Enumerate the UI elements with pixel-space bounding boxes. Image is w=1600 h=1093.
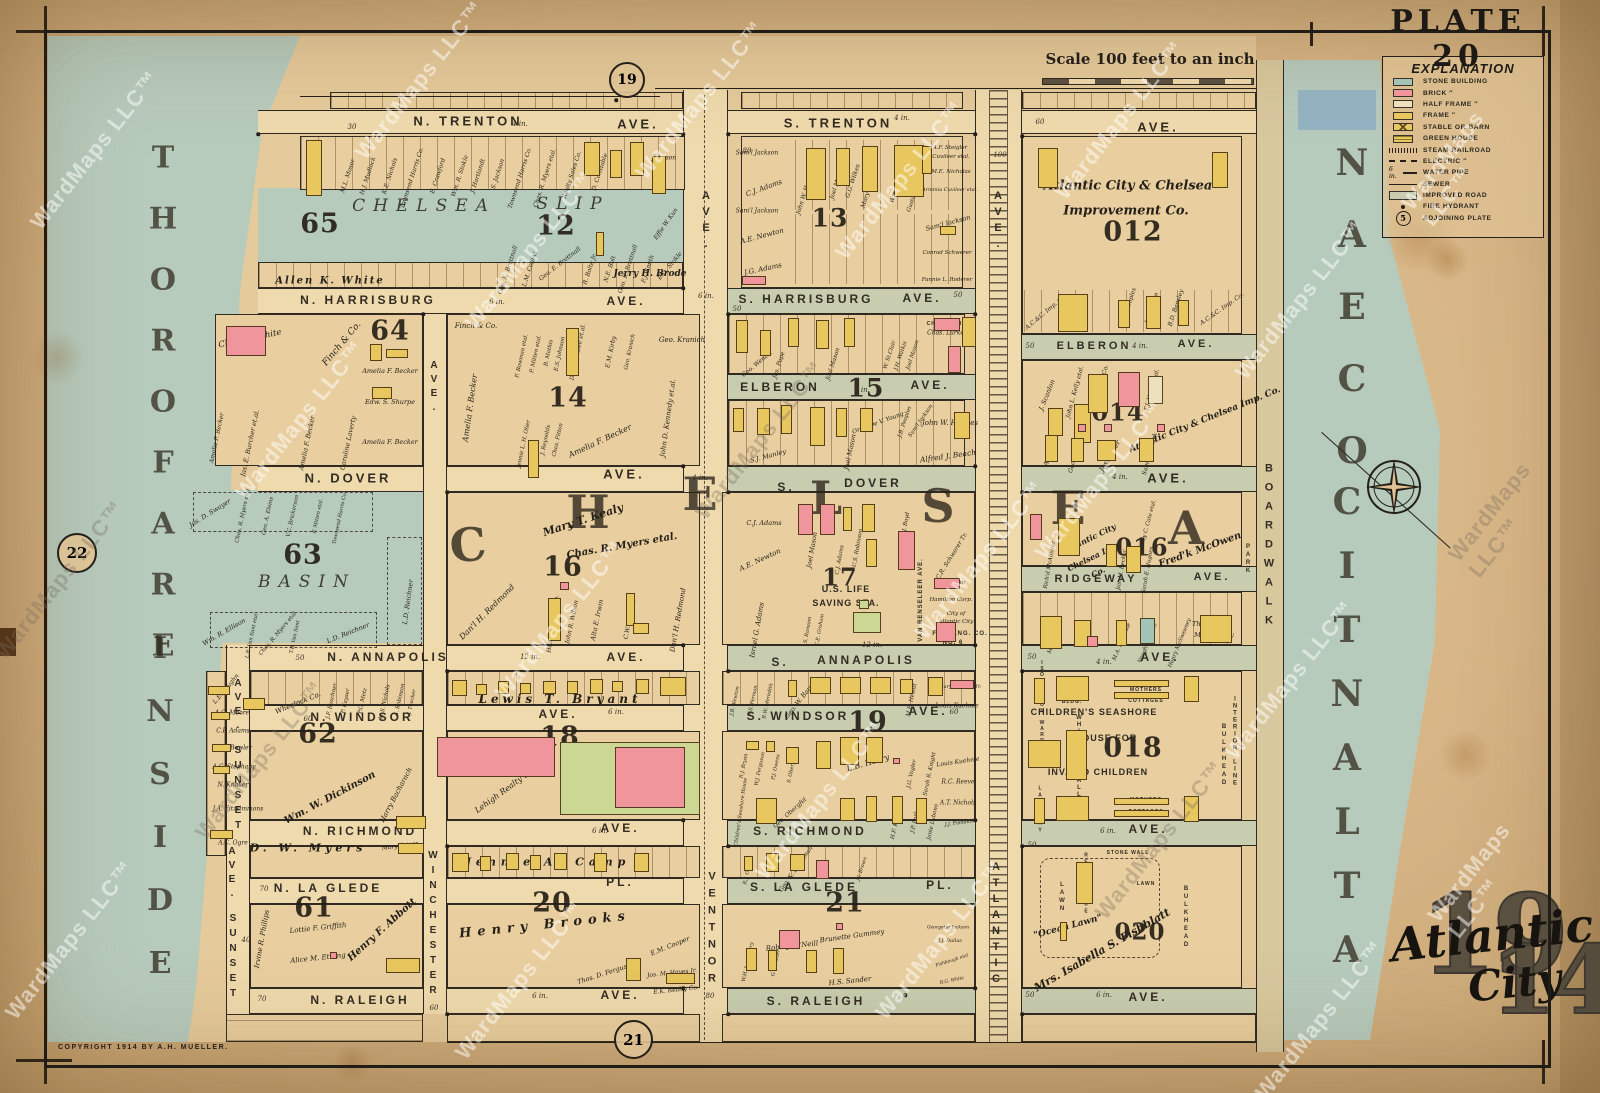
dimension-label: 50 xyxy=(1028,653,1037,661)
plate-title: PLATE 20 xyxy=(1368,4,1548,74)
building xyxy=(788,318,799,347)
vertical-label: INTERIOR LINE xyxy=(1232,697,1238,788)
frame-tick xyxy=(1310,22,1313,46)
vertical-label: BULKHEAD xyxy=(1183,886,1189,950)
owner-label: Georgette Jackson xyxy=(927,926,969,931)
survey-dot xyxy=(726,490,730,494)
legend-swatch xyxy=(1393,89,1413,97)
city-block xyxy=(741,92,963,109)
tiny-label: LAWN xyxy=(1137,881,1156,887)
vertical-label: CITNALTA xyxy=(1326,481,1368,993)
legend-stable-icon xyxy=(1389,123,1417,131)
building xyxy=(1038,148,1058,188)
building xyxy=(757,408,770,435)
watermark: WardMaps LLC™ xyxy=(1443,457,1557,582)
building xyxy=(1178,300,1189,326)
dimension-label: 4 in. xyxy=(692,474,708,482)
building xyxy=(610,150,622,178)
legend-swatch: 5 xyxy=(1396,211,1411,226)
copyright-text: COPYRIGHT 1914 BY A.H. MUELLER. xyxy=(58,1044,229,1051)
script-label: Lewis T. Bryant xyxy=(478,692,641,706)
tiny-label: STONE WALL xyxy=(1107,850,1150,856)
building xyxy=(1071,438,1084,462)
survey-dot xyxy=(445,1012,449,1016)
vertical-label: THOROFARE xyxy=(146,141,181,690)
survey-dot xyxy=(421,312,425,316)
owner-label: Hamilton Corp. xyxy=(929,597,972,603)
legend-item: HALF FRAME ″ xyxy=(1389,99,1537,110)
survey-dot xyxy=(681,986,685,990)
building xyxy=(900,679,913,694)
street-label: AVE. xyxy=(600,988,639,1002)
building xyxy=(934,318,960,331)
building xyxy=(816,320,829,349)
survey-dot xyxy=(681,464,685,468)
building xyxy=(1078,424,1086,432)
legend-swatch xyxy=(1393,78,1413,86)
survey-dot xyxy=(445,490,449,494)
script-label: Atlantic City & Chelsea xyxy=(1044,179,1213,194)
building xyxy=(634,853,649,872)
owner-label: Sam'l Jackson xyxy=(736,150,778,157)
building xyxy=(1058,518,1080,556)
building xyxy=(1212,152,1228,188)
building xyxy=(744,856,753,871)
building xyxy=(870,677,891,694)
street-label: N. RALEIGH xyxy=(310,993,409,1007)
survey-dot xyxy=(973,132,977,136)
vertical-label: AVE. xyxy=(700,190,712,254)
dimension-label: 80 xyxy=(706,992,715,1000)
margin-tab xyxy=(0,628,16,656)
building xyxy=(733,408,744,432)
building xyxy=(626,593,635,626)
building xyxy=(306,140,322,196)
block-number: 65 xyxy=(300,209,340,240)
building xyxy=(916,798,927,824)
dimension-label: 50 xyxy=(296,654,305,662)
survey-dot xyxy=(726,312,730,316)
vertical-label: ATLANTIC xyxy=(990,861,1002,989)
street-label: N. DOVER xyxy=(305,471,392,486)
legend-item-label: BRICK ″ xyxy=(1423,90,1453,97)
survey-dot xyxy=(726,132,730,136)
building xyxy=(786,747,799,764)
adjoining-plate-left: 22 xyxy=(57,533,97,573)
building xyxy=(530,855,541,870)
legend-rail-icon xyxy=(1389,148,1417,153)
dimension-label: 50 xyxy=(1026,342,1035,350)
building xyxy=(548,598,561,641)
block-number: 20 xyxy=(532,888,572,919)
dimension-label: 6 in. xyxy=(698,292,714,300)
block-number: 21 xyxy=(825,888,865,919)
building xyxy=(652,156,666,194)
building xyxy=(746,741,759,750)
block-number: 64 xyxy=(370,316,410,347)
legend-electric-icon xyxy=(1389,160,1417,162)
legend-item-label: WATER PIPE xyxy=(1423,169,1469,176)
street-label: S. HARRISBURG xyxy=(738,292,873,306)
street-label: AVE. xyxy=(1128,990,1167,1004)
legend-item: IMPROVED ROAD xyxy=(1389,190,1537,201)
building xyxy=(936,622,956,642)
building xyxy=(1048,408,1063,436)
dimension-label: 30 xyxy=(348,123,357,131)
building xyxy=(498,681,509,694)
script-label: Allen K. White xyxy=(275,276,384,287)
frame-tick xyxy=(16,30,72,33)
building xyxy=(1056,676,1089,701)
building xyxy=(528,440,539,478)
vertical-label: BULKHEAD xyxy=(1221,724,1227,788)
building xyxy=(1060,922,1067,941)
city-block xyxy=(447,1014,700,1042)
building xyxy=(212,744,231,752)
city-block xyxy=(722,1014,975,1042)
legend-item-label: STONE BUILDING xyxy=(1423,78,1488,85)
vertical-label: AVE. xyxy=(992,190,1004,254)
vertical-label: SUNSET xyxy=(233,745,244,835)
legend-swatch xyxy=(1393,112,1413,120)
street-label: ELBERON xyxy=(1057,340,1132,352)
water-label: CHELSEA xyxy=(352,196,496,216)
vertical-label: VENTNOR xyxy=(706,871,718,990)
building xyxy=(386,349,408,358)
building xyxy=(816,860,829,879)
building xyxy=(892,796,903,824)
building xyxy=(1184,796,1199,822)
street-label: AVE. xyxy=(1128,822,1167,836)
building xyxy=(1040,616,1062,649)
building xyxy=(396,816,426,829)
street-label: AVE. xyxy=(1194,571,1231,583)
owner-label: Finch & Co. xyxy=(455,322,497,330)
vertical-label: PARK xyxy=(1245,544,1251,576)
map-edge-line xyxy=(655,88,1256,89)
building xyxy=(810,407,825,446)
building xyxy=(666,973,695,984)
dimension-label: 40 xyxy=(242,936,251,944)
building xyxy=(1114,692,1169,699)
adjoining-plate-bottom-number: 21 xyxy=(623,1031,644,1049)
street-label: S. TRENTON xyxy=(784,116,893,131)
building xyxy=(452,680,467,696)
building xyxy=(1076,862,1093,904)
building xyxy=(213,766,230,774)
dimension-label: 60 xyxy=(430,1004,439,1012)
owner-label: Edw. S. Shurpe xyxy=(365,398,415,406)
building xyxy=(1088,374,1108,413)
adjoining-plate-bottom: 21 xyxy=(614,1020,653,1059)
building xyxy=(766,853,779,872)
legend-hydrant-icon xyxy=(1389,205,1417,209)
building xyxy=(768,950,777,971)
legend-greenhouse-icon xyxy=(1389,135,1417,143)
street-label: AVE. xyxy=(1137,120,1178,135)
tiny-label: CHILDREN'S SEASHORE xyxy=(1031,707,1158,717)
building xyxy=(330,952,337,959)
dimension-label: 6 in. xyxy=(489,298,505,306)
building xyxy=(1034,798,1045,824)
building xyxy=(742,276,766,285)
building xyxy=(1148,376,1163,404)
legend-item-label: STEAM RAILROAD xyxy=(1423,147,1491,154)
building xyxy=(1045,435,1058,462)
building xyxy=(1104,424,1112,432)
dimension-label: 12 in. xyxy=(520,653,540,661)
building xyxy=(520,683,531,694)
tiny-label: SAVING STA. xyxy=(812,598,879,608)
legend-item: GREEN HOUSE xyxy=(1389,133,1537,144)
owner-label: Cuvileer etal. xyxy=(932,154,970,160)
building xyxy=(372,387,392,399)
building xyxy=(898,531,915,570)
building xyxy=(480,856,491,871)
legend-item-label: FIRE HYDRANT xyxy=(1423,203,1479,210)
building xyxy=(660,677,686,696)
dimension-label: 6 in. xyxy=(1100,827,1116,835)
building xyxy=(1114,810,1169,817)
dimension-label: 4 in. xyxy=(894,114,910,122)
block-number: 19 xyxy=(848,707,888,738)
city-block xyxy=(226,1014,423,1042)
street-label: AVE. xyxy=(1178,338,1215,350)
street-label: AVE. xyxy=(902,291,941,305)
building xyxy=(208,686,230,695)
building xyxy=(1030,514,1042,540)
building xyxy=(862,504,875,532)
building xyxy=(836,148,850,186)
dimension-label: 6 in. xyxy=(532,992,548,1000)
building xyxy=(1184,676,1199,702)
street-label: PL. xyxy=(926,878,954,892)
water-label: BASIN xyxy=(258,572,356,592)
paper-stain xyxy=(330,1045,375,1080)
building xyxy=(1097,440,1116,461)
building xyxy=(1058,294,1088,332)
legend-item: 5ADJOINING PLATE xyxy=(1389,213,1537,224)
legend-swatch xyxy=(1393,135,1413,143)
building xyxy=(893,758,900,764)
dimension-label: 60 xyxy=(1036,118,1045,126)
building xyxy=(1140,618,1155,644)
building xyxy=(1028,740,1061,768)
street-label: DOVER xyxy=(844,476,902,490)
owner-label: Amelia F. Becker xyxy=(362,367,418,375)
vertical-label: SUNSET xyxy=(228,913,239,1003)
building xyxy=(859,600,869,609)
scale-bar xyxy=(1042,78,1254,85)
building xyxy=(833,948,844,974)
building xyxy=(806,148,826,200)
dimension-label: 12 in. xyxy=(862,641,882,649)
owner-label: M.E. Nicholas xyxy=(931,169,970,175)
legend-frame-icon xyxy=(1389,112,1417,120)
dimension-label: 4 in. xyxy=(1112,473,1128,481)
survey-dot xyxy=(1020,490,1024,494)
building xyxy=(836,408,847,437)
building xyxy=(584,142,600,176)
legend-item: FRAME ″ xyxy=(1389,110,1537,121)
legend-item-label: STABLE OR BARN xyxy=(1423,124,1490,131)
legend-item: STEAM RAILROAD xyxy=(1389,144,1537,155)
street-label: S. xyxy=(771,655,788,669)
building xyxy=(853,612,881,633)
survey-dot xyxy=(1020,134,1024,138)
dimension-label: 4 in. xyxy=(854,386,870,394)
building xyxy=(766,741,775,752)
legend-swatch xyxy=(1393,100,1413,108)
building xyxy=(806,950,817,973)
street-label: N. ANNAPOLIS xyxy=(327,650,449,664)
block-number: 14 xyxy=(548,383,588,414)
street-label: S. RALEIGH xyxy=(767,994,866,1008)
street-label: AVE. xyxy=(617,117,658,132)
building xyxy=(210,830,233,839)
building xyxy=(790,854,805,871)
dimension-label: 6 in. xyxy=(1096,991,1112,999)
building xyxy=(843,507,852,531)
street-label: N. HARRISBURG xyxy=(300,293,436,307)
logo-script-2: City xyxy=(1466,953,1564,1011)
building xyxy=(836,923,843,930)
street-label: PL. xyxy=(606,875,634,889)
building xyxy=(862,146,878,192)
building xyxy=(590,679,603,694)
building xyxy=(1087,636,1098,647)
frame-tick xyxy=(44,1040,47,1084)
vertical-label: LAWN xyxy=(1059,882,1065,914)
owner-label: J.J. Dallas xyxy=(938,938,962,944)
building xyxy=(1116,620,1127,646)
building xyxy=(866,796,877,822)
building xyxy=(746,948,757,971)
legend-swatch xyxy=(1389,184,1417,185)
adjoining-plate-left-number: 22 xyxy=(67,544,88,562)
building xyxy=(810,677,831,694)
legend-sewer-icon xyxy=(1389,184,1417,185)
legend-swatch xyxy=(1401,205,1405,209)
building xyxy=(594,853,607,872)
legend-item-label: FRAME ″ xyxy=(1423,112,1456,119)
street-band xyxy=(258,110,1256,134)
owner-label: Conrad Schwerer xyxy=(922,250,971,256)
building xyxy=(1118,372,1140,407)
scale-label: Scale 100 feet to an inch xyxy=(1040,50,1260,68)
survey-dot xyxy=(903,993,907,997)
street-label: N. TRENTON xyxy=(413,114,522,129)
survey-dot xyxy=(973,986,977,990)
building xyxy=(962,317,976,347)
legend-waterpipe-icon: 6 in. xyxy=(1389,166,1417,180)
block-number: 62 xyxy=(298,719,338,750)
dimension-label: 50 xyxy=(1026,991,1035,999)
building xyxy=(781,405,792,434)
compass-rose-icon xyxy=(1362,455,1426,519)
dimension-label: 50 xyxy=(733,305,742,313)
legend-swatch xyxy=(1389,148,1417,153)
survey-dot xyxy=(973,312,977,316)
vertical-label: AVE. xyxy=(227,846,238,902)
vertical-label: BOARDWALK xyxy=(1263,463,1275,634)
block-number: 13 xyxy=(812,204,849,233)
block-number: 61 xyxy=(294,893,334,924)
vertical-label: AVE. xyxy=(233,678,244,734)
water-label: SLIP xyxy=(536,194,609,214)
building xyxy=(894,145,924,197)
building xyxy=(1126,546,1141,573)
legend-item-label: HALF FRAME ″ xyxy=(1423,101,1478,108)
legend-swatch xyxy=(1393,123,1413,131)
legend-rows: STONE BUILDINGBRICK ″HALF FRAME ″FRAME ″… xyxy=(1389,76,1537,224)
legend-item-label: GREEN HOUSE xyxy=(1423,135,1478,142)
street-label: AVE. xyxy=(606,650,645,664)
dimension-label: 4 in. xyxy=(1096,658,1112,666)
building xyxy=(840,677,861,694)
building xyxy=(476,684,487,695)
owner-label: Geo. Kranich xyxy=(659,336,705,344)
map-edge-line xyxy=(447,1042,1256,1043)
owner-label: A.F. Steigler xyxy=(933,145,967,151)
owner-label: City of xyxy=(947,611,965,617)
vertical-label: NAECO xyxy=(1331,142,1373,502)
survey-dot xyxy=(973,643,977,647)
legend-box: EXPLANATION STONE BUILDINGBRICK ″HALF FR… xyxy=(1382,56,1544,238)
dimension-label: 60 xyxy=(304,715,313,723)
legend-item: SEWER xyxy=(1389,179,1537,190)
city-block xyxy=(1022,92,1256,109)
vertical-label: INSIDE xyxy=(143,631,178,1009)
survey-dot xyxy=(445,669,449,673)
building xyxy=(1034,678,1045,704)
dimension-label: 4 in. xyxy=(512,120,528,128)
building xyxy=(626,958,641,981)
building xyxy=(211,712,230,720)
survey-dot xyxy=(445,844,449,848)
block-number: 12 xyxy=(536,211,576,242)
building xyxy=(566,328,579,376)
survey-dot xyxy=(1020,669,1024,673)
survey-dot xyxy=(256,132,260,136)
district-letter: S xyxy=(921,479,954,533)
survey-dot xyxy=(726,1012,730,1016)
adjoining-plate-top: 19 xyxy=(609,62,645,98)
legend-item: STONE BUILDING xyxy=(1389,76,1537,87)
building xyxy=(950,680,974,689)
building xyxy=(756,798,777,824)
building xyxy=(840,798,855,821)
owner-label: A.T. Nichols xyxy=(940,800,976,807)
building xyxy=(633,623,649,634)
legend-halfframe-icon xyxy=(1389,100,1417,108)
owner-label: Louis Kuehnle xyxy=(935,703,978,710)
building xyxy=(948,346,961,373)
building xyxy=(736,320,748,353)
building xyxy=(866,737,883,763)
building xyxy=(1146,296,1161,329)
survey-dot xyxy=(726,844,730,848)
dimension-label: 6 in. xyxy=(608,708,624,716)
building xyxy=(928,677,943,696)
survey-dot xyxy=(681,643,685,647)
building xyxy=(844,318,855,347)
legend-adjoin-icon: 5 xyxy=(1389,211,1417,226)
atlas-logo: 19 14 Atlantic City xyxy=(1390,880,1590,1050)
block-number: 63 xyxy=(283,540,323,571)
map-edge-line xyxy=(300,96,660,97)
legend-swatch xyxy=(1389,191,1417,200)
